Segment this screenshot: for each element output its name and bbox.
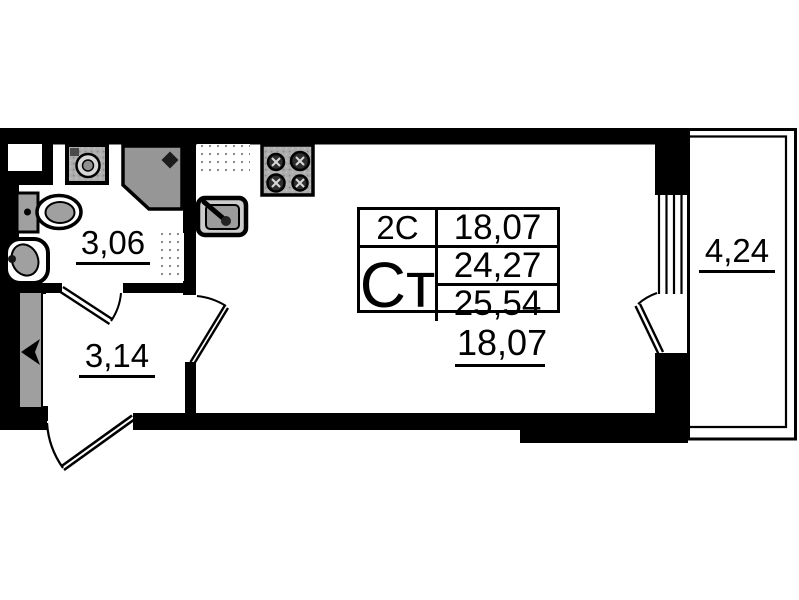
unit-type-main: Ст: [360, 248, 438, 321]
hallway-area-label: 3,14: [79, 339, 155, 378]
floor-plan-page: 3,06 3,14 18,07 4,24 2С 18,07 Ст 24,27 2…: [0, 0, 799, 600]
entrance-door: [47, 416, 135, 471]
shaft-niche: [8, 144, 53, 185]
hall-room-door: [191, 296, 229, 364]
door-swing-arc: [47, 423, 63, 468]
washing-machine-icon: [67, 145, 107, 183]
wall-top: [0, 128, 688, 145]
living-room-area-label: 18,07: [455, 325, 545, 367]
wall-balcony-partition-top: [655, 128, 688, 195]
unit-type-code: 2С: [360, 210, 438, 248]
living-area-value: 24,27: [438, 248, 557, 286]
window: [659, 194, 682, 294]
entrance-marker: [16, 286, 48, 421]
balcony-door: [636, 293, 664, 354]
kitchen-counter-dots: [197, 144, 250, 171]
door-swing-arc: [638, 293, 657, 304]
bathroom-door: [61, 287, 122, 324]
door-swing-arc: [111, 293, 121, 321]
wall-balcony-partition-bottom: [655, 353, 688, 443]
washbasin-icon: [6, 239, 48, 283]
wall-bathroom-right: [183, 128, 196, 295]
total-area-value: 25,54: [438, 286, 557, 321]
balcony-outline: [688, 130, 796, 440]
stove-icon: [262, 145, 313, 195]
unit-type-area: 18,07: [438, 210, 557, 248]
shower-icon: [123, 146, 182, 209]
kitchen-sink-icon: [198, 198, 246, 235]
bathroom-counter-dots: [161, 233, 184, 281]
apartment-info-table: 2С 18,07 Ст 24,27 25,54: [357, 207, 560, 313]
door-swing-arc: [197, 296, 226, 306]
balcony-area-label: 4,24: [699, 234, 775, 273]
toilet-icon: [17, 193, 81, 232]
bathroom-area-label: 3,06: [76, 226, 150, 265]
wall-bathroom-bottom-right: [123, 283, 196, 293]
